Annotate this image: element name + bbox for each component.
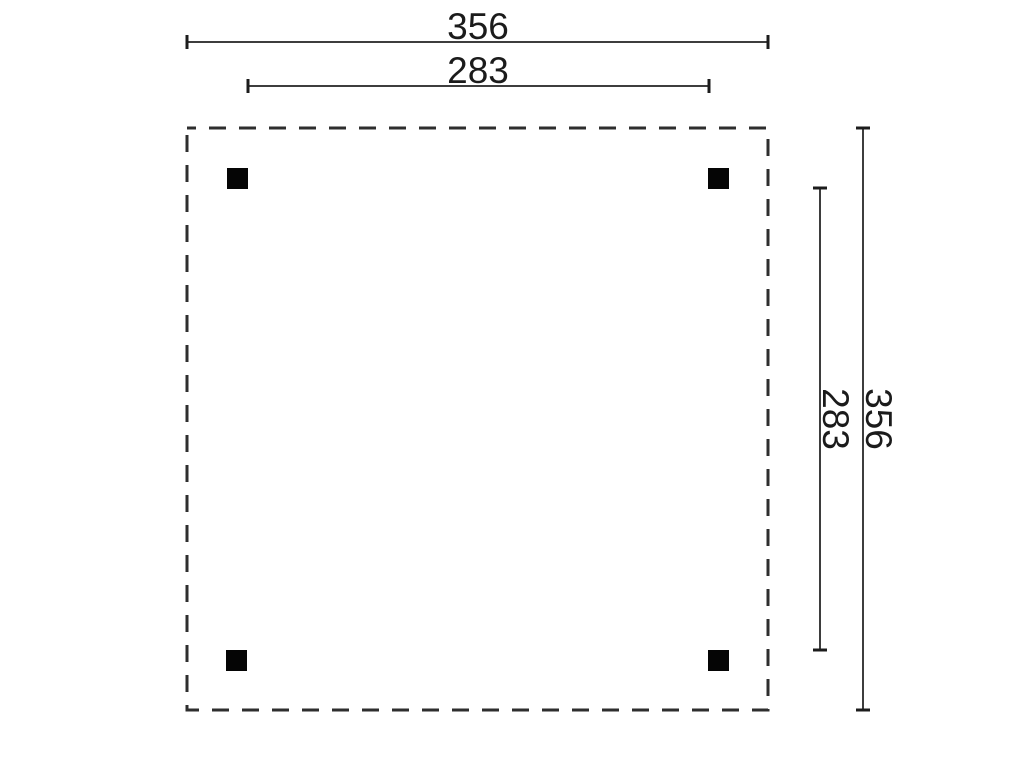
- dimension-label-top-outer: 356: [447, 6, 509, 47]
- floor-plan-drawing: 356 283 356 283: [0, 0, 1024, 768]
- dimension-top-outer: 356: [187, 6, 768, 49]
- dimension-label-right-outer: 356: [858, 388, 899, 450]
- post-bottom-left: [226, 650, 247, 671]
- dimension-right-inner: 283: [813, 188, 856, 650]
- dimension-right-outer: 356: [856, 128, 899, 710]
- post-top-right: [708, 168, 729, 189]
- post-bottom-right: [708, 650, 729, 671]
- plan-outline-dashed: [187, 128, 768, 710]
- post-top-left: [227, 168, 248, 189]
- dimension-label-right-inner: 283: [815, 388, 856, 450]
- floor-plan-canvas: 356 283 356 283: [0, 0, 1024, 768]
- dimension-label-top-inner: 283: [447, 50, 509, 91]
- dimension-top-inner: 283: [248, 50, 709, 93]
